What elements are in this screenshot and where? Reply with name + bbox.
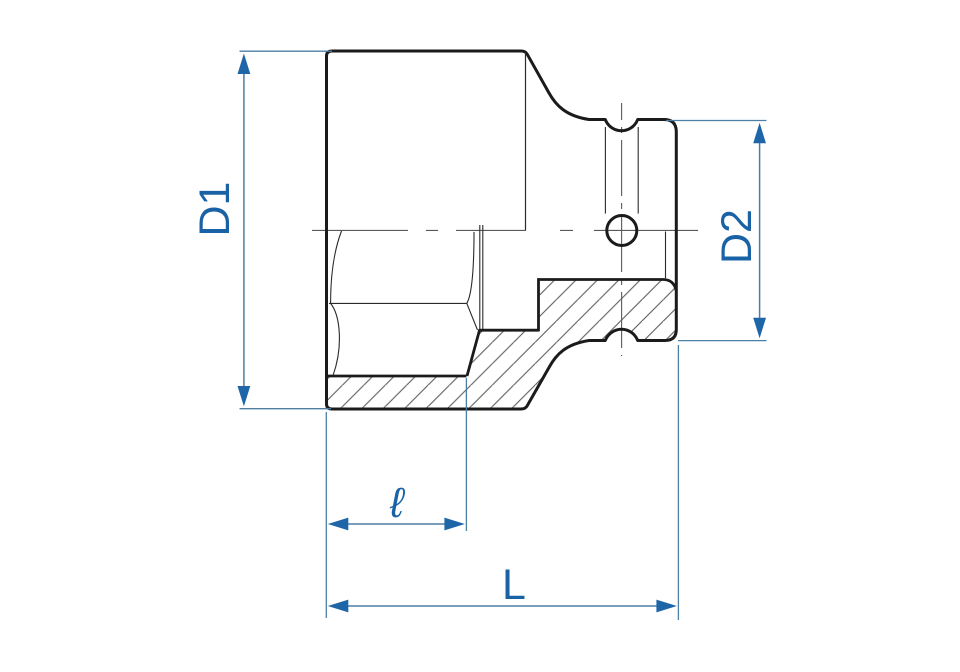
svg-text:D2: D2 xyxy=(713,209,761,264)
svg-text:D1: D1 xyxy=(191,182,239,237)
svg-text:ℓ: ℓ xyxy=(389,479,406,526)
svg-text:L: L xyxy=(502,561,526,609)
